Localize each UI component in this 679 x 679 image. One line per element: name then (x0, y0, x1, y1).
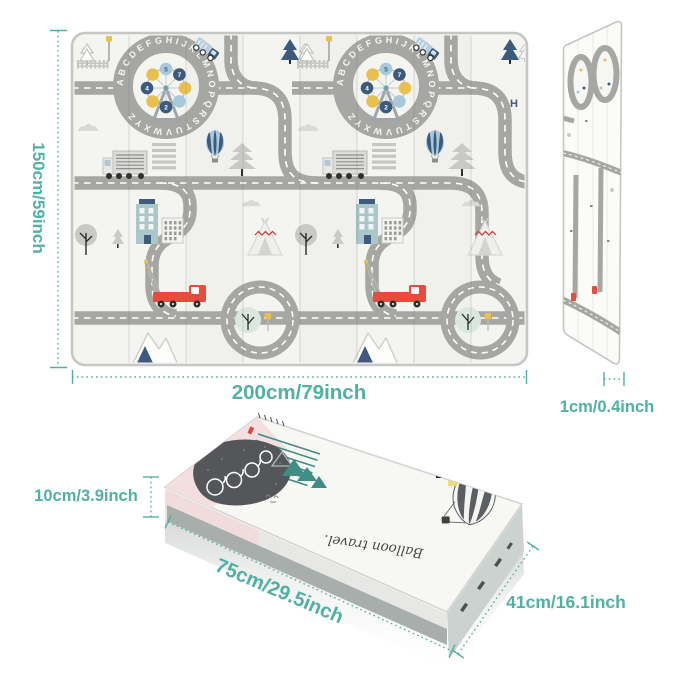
height-dimension-label: 150cm/59inch (29, 142, 48, 254)
height-dimension-line (50, 31, 67, 368)
playmat-side-view (563, 20, 622, 366)
product-dimension-diagram: ABCDEFGHIJKLMNOPQRSTUVWXYZ 5 7 2 4 (0, 0, 679, 679)
diagram-canvas: ABCDEFGHIJKLMNOPQRSTUVWXYZ 5 7 2 4 (0, 0, 679, 679)
thickness-dimension-line (604, 372, 624, 386)
thickness-dimension-label: 1cm/0.4inch (560, 398, 654, 416)
folded-height-dimension-label: 10cm/3.9inch (34, 487, 138, 505)
playmat-folded: Balloon travel. (165, 413, 524, 670)
folded-width-dimension-label: 41cm/16.1inch (506, 592, 626, 612)
folded-height-dimension-line (143, 477, 159, 517)
width-dimension-label: 200cm/79inch (232, 381, 366, 404)
